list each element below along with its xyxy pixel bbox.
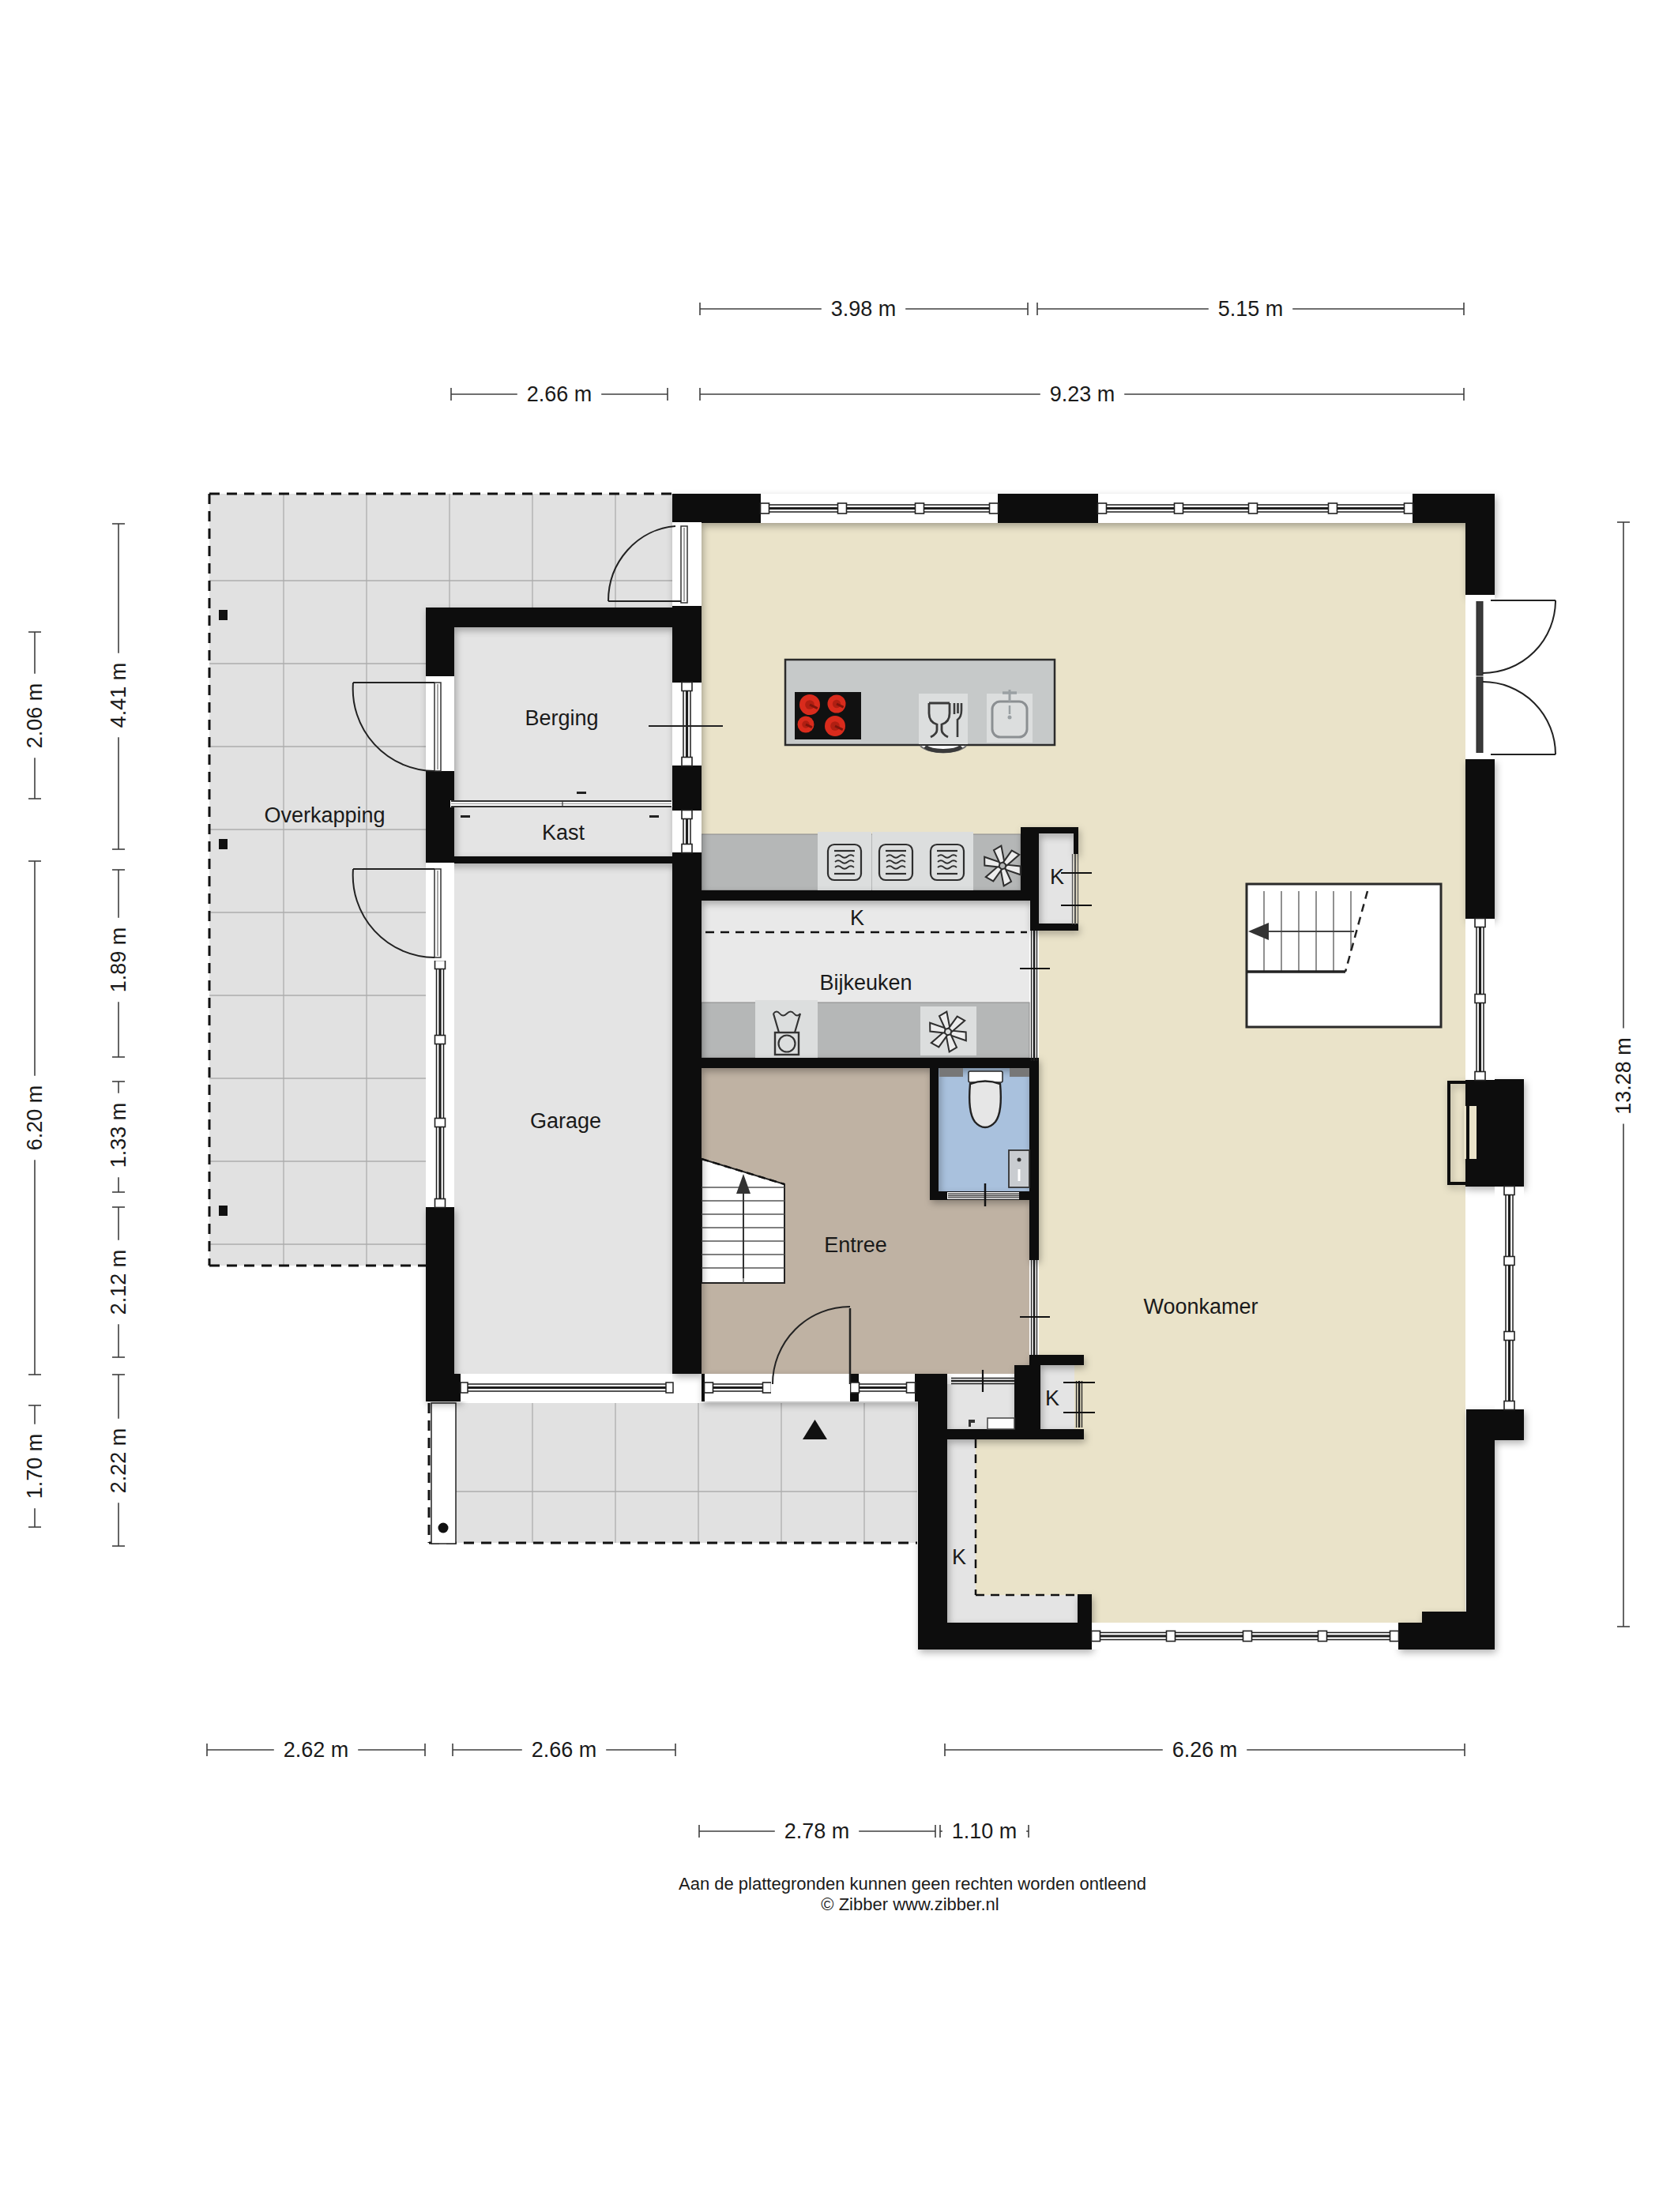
svg-text:1.33 m: 1.33 m xyxy=(107,1103,130,1168)
svg-text:1.89 m: 1.89 m xyxy=(107,927,130,993)
svg-text:1.70 m: 1.70 m xyxy=(23,1434,47,1499)
svg-text:Garage: Garage xyxy=(530,1109,601,1133)
svg-text:2.66 m: 2.66 m xyxy=(527,382,592,406)
svg-text:Entree: Entree xyxy=(824,1233,887,1257)
svg-text:4.41 m: 4.41 m xyxy=(107,663,130,728)
svg-text:6.26 m: 6.26 m xyxy=(1172,1738,1238,1762)
svg-text:K: K xyxy=(850,906,864,930)
svg-text:K: K xyxy=(1045,1386,1059,1410)
svg-text:2.06 m: 2.06 m xyxy=(23,683,47,749)
svg-text:2.22 m: 2.22 m xyxy=(107,1428,130,1494)
svg-text:Berging: Berging xyxy=(525,706,598,730)
svg-text:Aan de plattegronden kunnen ge: Aan de plattegronden kunnen geen rechten… xyxy=(679,1874,1146,1894)
svg-text:K: K xyxy=(1050,865,1064,889)
svg-text:2.12 m: 2.12 m xyxy=(107,1250,130,1315)
svg-text:3.98 m: 3.98 m xyxy=(831,297,897,321)
svg-text:Bijkeuken: Bijkeuken xyxy=(819,971,912,995)
svg-text:1.10 m: 1.10 m xyxy=(952,1819,1018,1843)
svg-text:Woonkamer: Woonkamer xyxy=(1143,1295,1258,1319)
svg-text:9.23 m: 9.23 m xyxy=(1050,382,1115,406)
svg-text:2.62 m: 2.62 m xyxy=(284,1738,349,1762)
svg-text:6.20 m: 6.20 m xyxy=(23,1085,47,1151)
svg-text:13.28 m: 13.28 m xyxy=(1612,1037,1635,1115)
svg-text:K: K xyxy=(952,1545,966,1569)
svg-text:5.15 m: 5.15 m xyxy=(1218,297,1284,321)
svg-text:Overkapping: Overkapping xyxy=(264,803,385,827)
svg-text:Kast: Kast xyxy=(542,821,585,845)
svg-text:2.78 m: 2.78 m xyxy=(784,1819,850,1843)
svg-text:© Zibber www.zibber.nl: © Zibber www.zibber.nl xyxy=(821,1894,999,1914)
svg-text:2.66 m: 2.66 m xyxy=(532,1738,597,1762)
